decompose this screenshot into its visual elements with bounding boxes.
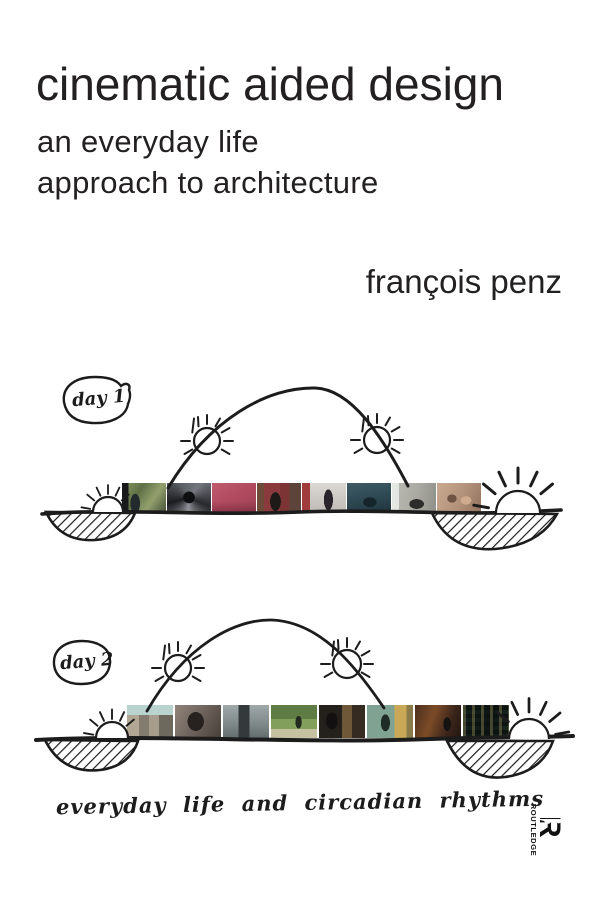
- day1-afternoon-sun-icon: [364, 427, 390, 453]
- author-name: françois penz: [366, 263, 562, 301]
- subtitle-line-2: approach to architecture: [37, 162, 379, 203]
- day2-right-mound: [447, 741, 553, 778]
- film-frame-window-foliage: [122, 483, 166, 513]
- film-frame-street-facades: [127, 705, 173, 738]
- film-frame-night-street: [415, 705, 461, 738]
- film-frame-hallway-yellow-door: [367, 705, 413, 738]
- film-frame-grey-living-room: [392, 483, 436, 513]
- filmstrip-day2: [127, 705, 509, 738]
- film-frame-white-room-red-door: [302, 483, 346, 513]
- day2-rising-sun-icon: [96, 722, 128, 738]
- film-frame-teal-dining-room: [347, 483, 391, 513]
- day1-left-mound: [46, 512, 135, 540]
- film-frame-building-entrance: [223, 705, 269, 738]
- day1-rising-sun-icon: [93, 497, 123, 512]
- day1-right-mound: [432, 513, 557, 549]
- film-frame-red-kitchen-shelves: [257, 483, 301, 513]
- day1-setting-sun-icon: [496, 491, 540, 513]
- film-frame-dark-face-closeup: [175, 705, 221, 738]
- book-title: cinematic aided design: [36, 57, 504, 111]
- routledge-r-icon: R: [537, 815, 565, 845]
- day1-sun-arc: [168, 388, 408, 488]
- film-frame-spiral-staircase: [167, 483, 211, 513]
- publisher-name: ROUTLEDGE: [529, 804, 537, 856]
- day2-setting-sun-icon: [509, 719, 549, 739]
- book-cover: cinematic aided design an everyday life …: [0, 0, 600, 900]
- film-frame-park-walk: [271, 705, 317, 738]
- day2-sun-arc: [147, 620, 384, 711]
- day1-morning-sun-icon: [194, 428, 220, 454]
- day2-label: day 2: [59, 649, 114, 675]
- film-frame-night-lit-windows: [463, 705, 509, 738]
- film-frame-bedroom-couple: [437, 483, 481, 513]
- day2-morning-sun-icon: [165, 655, 191, 681]
- day1-label: day 1: [71, 386, 126, 412]
- day2-afternoon-sun-icon: [333, 650, 361, 678]
- filmstrip-day1: [122, 483, 481, 513]
- routledge-logo: R ROUTLEDGE: [527, 796, 565, 864]
- day2-illustration: [36, 620, 573, 778]
- subtitle-line-1: an everyday life: [37, 121, 379, 162]
- film-frame-dark-kitchen: [319, 705, 365, 738]
- book-subtitle: an everyday life approach to architectur…: [37, 121, 379, 203]
- day2-left-mound: [45, 740, 138, 770]
- cover-caption: everyday life and circadian rhythms: [0, 785, 600, 820]
- film-frame-pink-room: [212, 483, 256, 513]
